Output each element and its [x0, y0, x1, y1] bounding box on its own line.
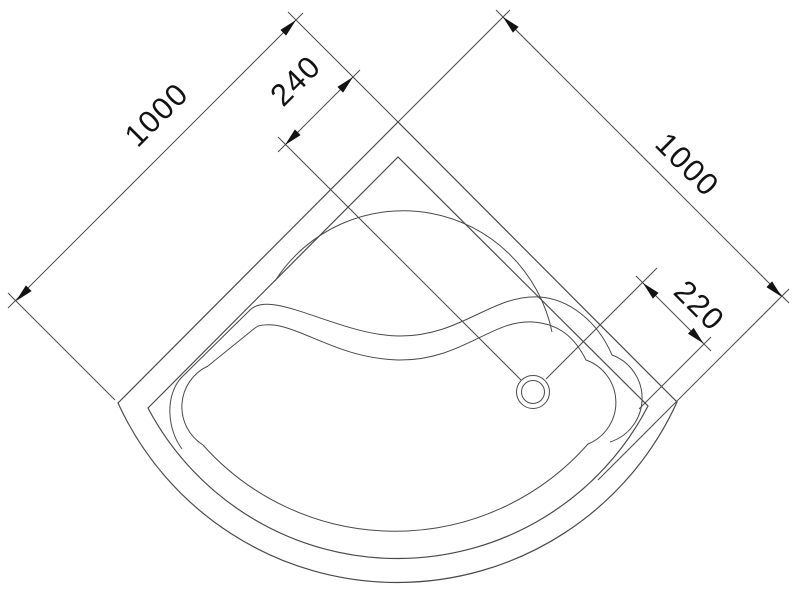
- dimension-right-1000: 1000: [398, 10, 789, 480]
- dimension-line: [8, 13, 303, 308]
- dimension-label-right: 1000: [649, 126, 727, 204]
- tray-geometry: [118, 122, 677, 583]
- extension-line: [639, 337, 711, 409]
- shelf-arc: [275, 211, 552, 332]
- dimension-label-240: 240: [263, 48, 328, 113]
- tray-outer-contour: [118, 122, 677, 583]
- arrowhead-icon: [16, 285, 32, 301]
- extension-line: [398, 10, 510, 122]
- dimension-220: 220: [546, 268, 732, 409]
- extension-line-drain: [278, 137, 521, 380]
- dimension-label-220: 220: [667, 273, 732, 338]
- step-edge-curve: [170, 297, 642, 449]
- tray-rim-inner-contour: [148, 157, 648, 559]
- extension-line-drain: [546, 268, 657, 379]
- dimension-left-1000: 1000: [8, 12, 398, 400]
- technical-drawing-svg: 1000 1000 240 220: [0, 0, 800, 599]
- dimension-line: [496, 10, 789, 303]
- basin-outline: [182, 322, 616, 531]
- arrowhead-icon: [766, 281, 782, 297]
- extension-line: [8, 293, 115, 400]
- dimension-label-left: 1000: [118, 76, 196, 154]
- drain-inner-circle-icon: [522, 381, 545, 404]
- dimension-240: 240: [263, 48, 521, 380]
- drawing-canvas: 1000 1000 240 220: [0, 0, 800, 599]
